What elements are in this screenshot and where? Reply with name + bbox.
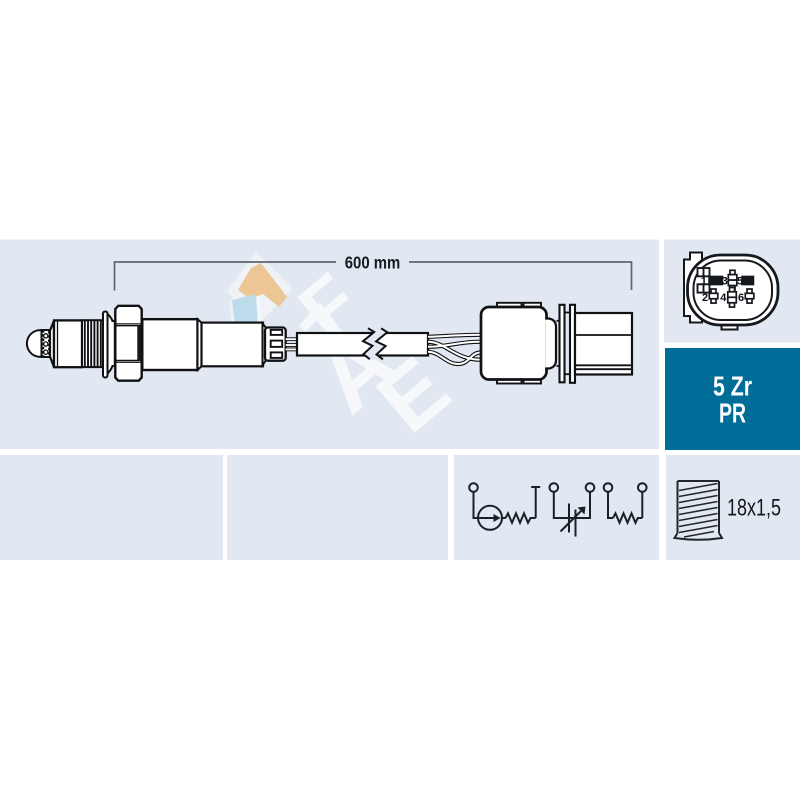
- svg-text:4: 4: [720, 292, 727, 304]
- svg-text:PR: PR: [719, 398, 746, 429]
- svg-text:18x1,5: 18x1,5: [727, 495, 781, 522]
- svg-text:5: 5: [737, 275, 743, 287]
- svg-text:1: 1: [701, 275, 707, 287]
- svg-text:6: 6: [738, 292, 744, 304]
- svg-text:2: 2: [702, 292, 708, 304]
- svg-text:3: 3: [722, 275, 728, 287]
- svg-text:600 mm: 600 mm: [345, 253, 401, 273]
